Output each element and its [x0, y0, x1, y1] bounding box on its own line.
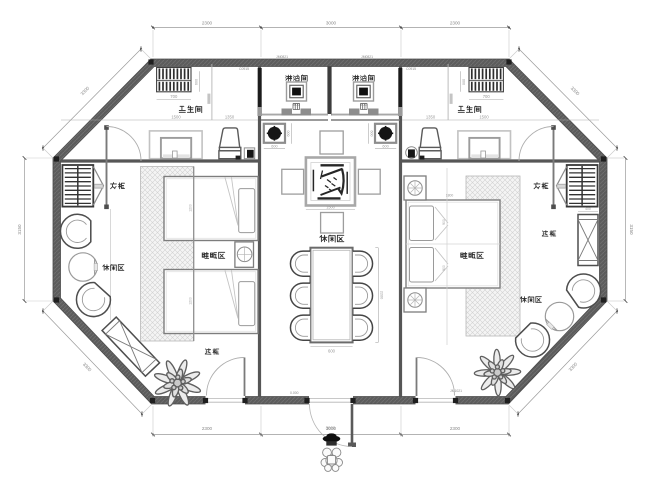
svg-text:0.000: 0.000	[290, 391, 299, 395]
svg-text:3000: 3000	[326, 426, 336, 431]
svg-text:3150: 3150	[629, 224, 634, 235]
svg-text:2300: 2300	[450, 21, 461, 26]
svg-text:900: 900	[442, 219, 446, 225]
svg-text:C0915: C0915	[406, 67, 416, 71]
svg-text:1800: 1800	[446, 194, 454, 198]
svg-text:C0915: C0915	[239, 67, 249, 71]
svg-text:600: 600	[271, 144, 277, 148]
svg-text:1500: 1500	[479, 114, 489, 119]
svg-text:2300: 2300	[450, 426, 461, 431]
svg-text:JM1021: JM1021	[450, 389, 462, 393]
svg-text:2260: 2260	[380, 291, 384, 299]
svg-text:600: 600	[382, 144, 388, 148]
svg-text:800: 800	[360, 102, 368, 107]
svg-text:1350: 1350	[225, 114, 235, 119]
svg-text:1350: 1350	[426, 114, 436, 119]
svg-text:600: 600	[328, 349, 336, 354]
svg-text:900: 900	[442, 265, 446, 271]
svg-text:1200: 1200	[189, 204, 193, 212]
svg-text:600: 600	[194, 79, 198, 85]
svg-text:JM0821: JM0821	[276, 55, 288, 59]
svg-text:2300: 2300	[202, 21, 213, 26]
svg-text:600: 600	[370, 131, 374, 137]
svg-text:1200: 1200	[189, 297, 193, 305]
svg-text:1500: 1500	[171, 114, 181, 119]
svg-text:3150: 3150	[17, 224, 22, 235]
svg-text:JM0821: JM0821	[361, 55, 373, 59]
svg-text:1500: 1500	[326, 205, 334, 209]
svg-text:400: 400	[585, 207, 591, 211]
svg-text:600: 600	[462, 79, 466, 85]
svg-text:600: 600	[287, 131, 291, 137]
svg-text:700: 700	[483, 94, 491, 99]
svg-text:2300: 2300	[202, 426, 213, 431]
svg-text:3000: 3000	[326, 21, 337, 26]
svg-text:700: 700	[170, 94, 178, 99]
